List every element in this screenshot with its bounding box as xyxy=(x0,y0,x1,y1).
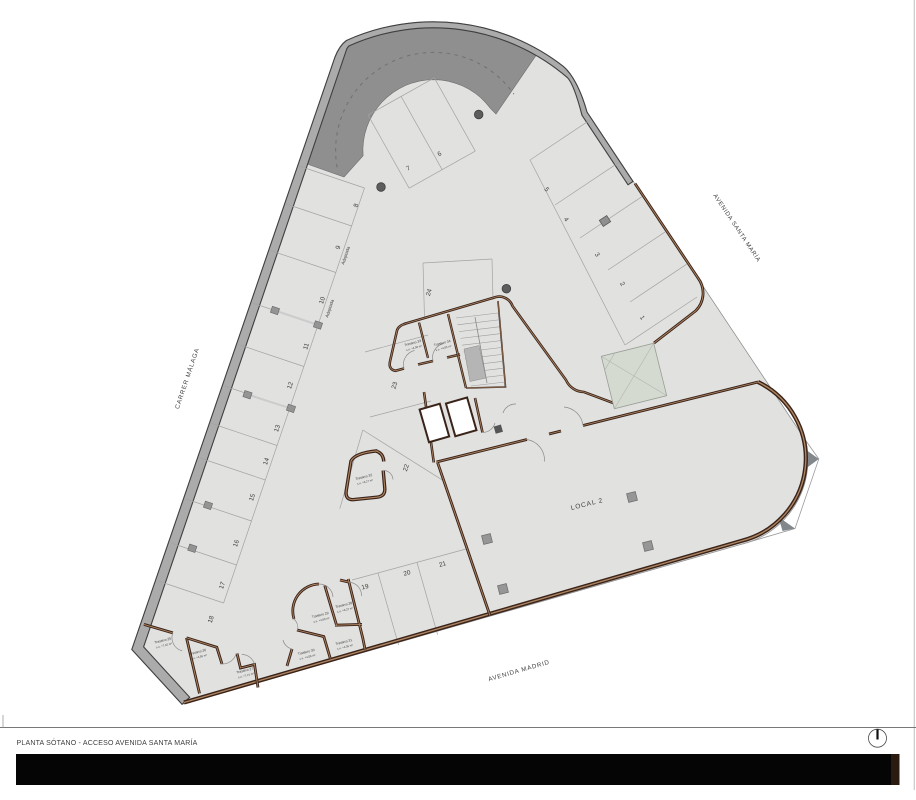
svg-text:CARRER MÁLAGA: CARRER MÁLAGA xyxy=(174,347,201,410)
svg-text:AVENIDA MADRID: AVENIDA MADRID xyxy=(488,659,551,683)
svg-text:PLANTA SÓTANO - ACCESO AVENIDA: PLANTA SÓTANO - ACCESO AVENIDA SANTA MAR… xyxy=(17,738,198,747)
svg-text:AVENIDA SANTA MARÍA: AVENIDA SANTA MARÍA xyxy=(712,193,762,264)
